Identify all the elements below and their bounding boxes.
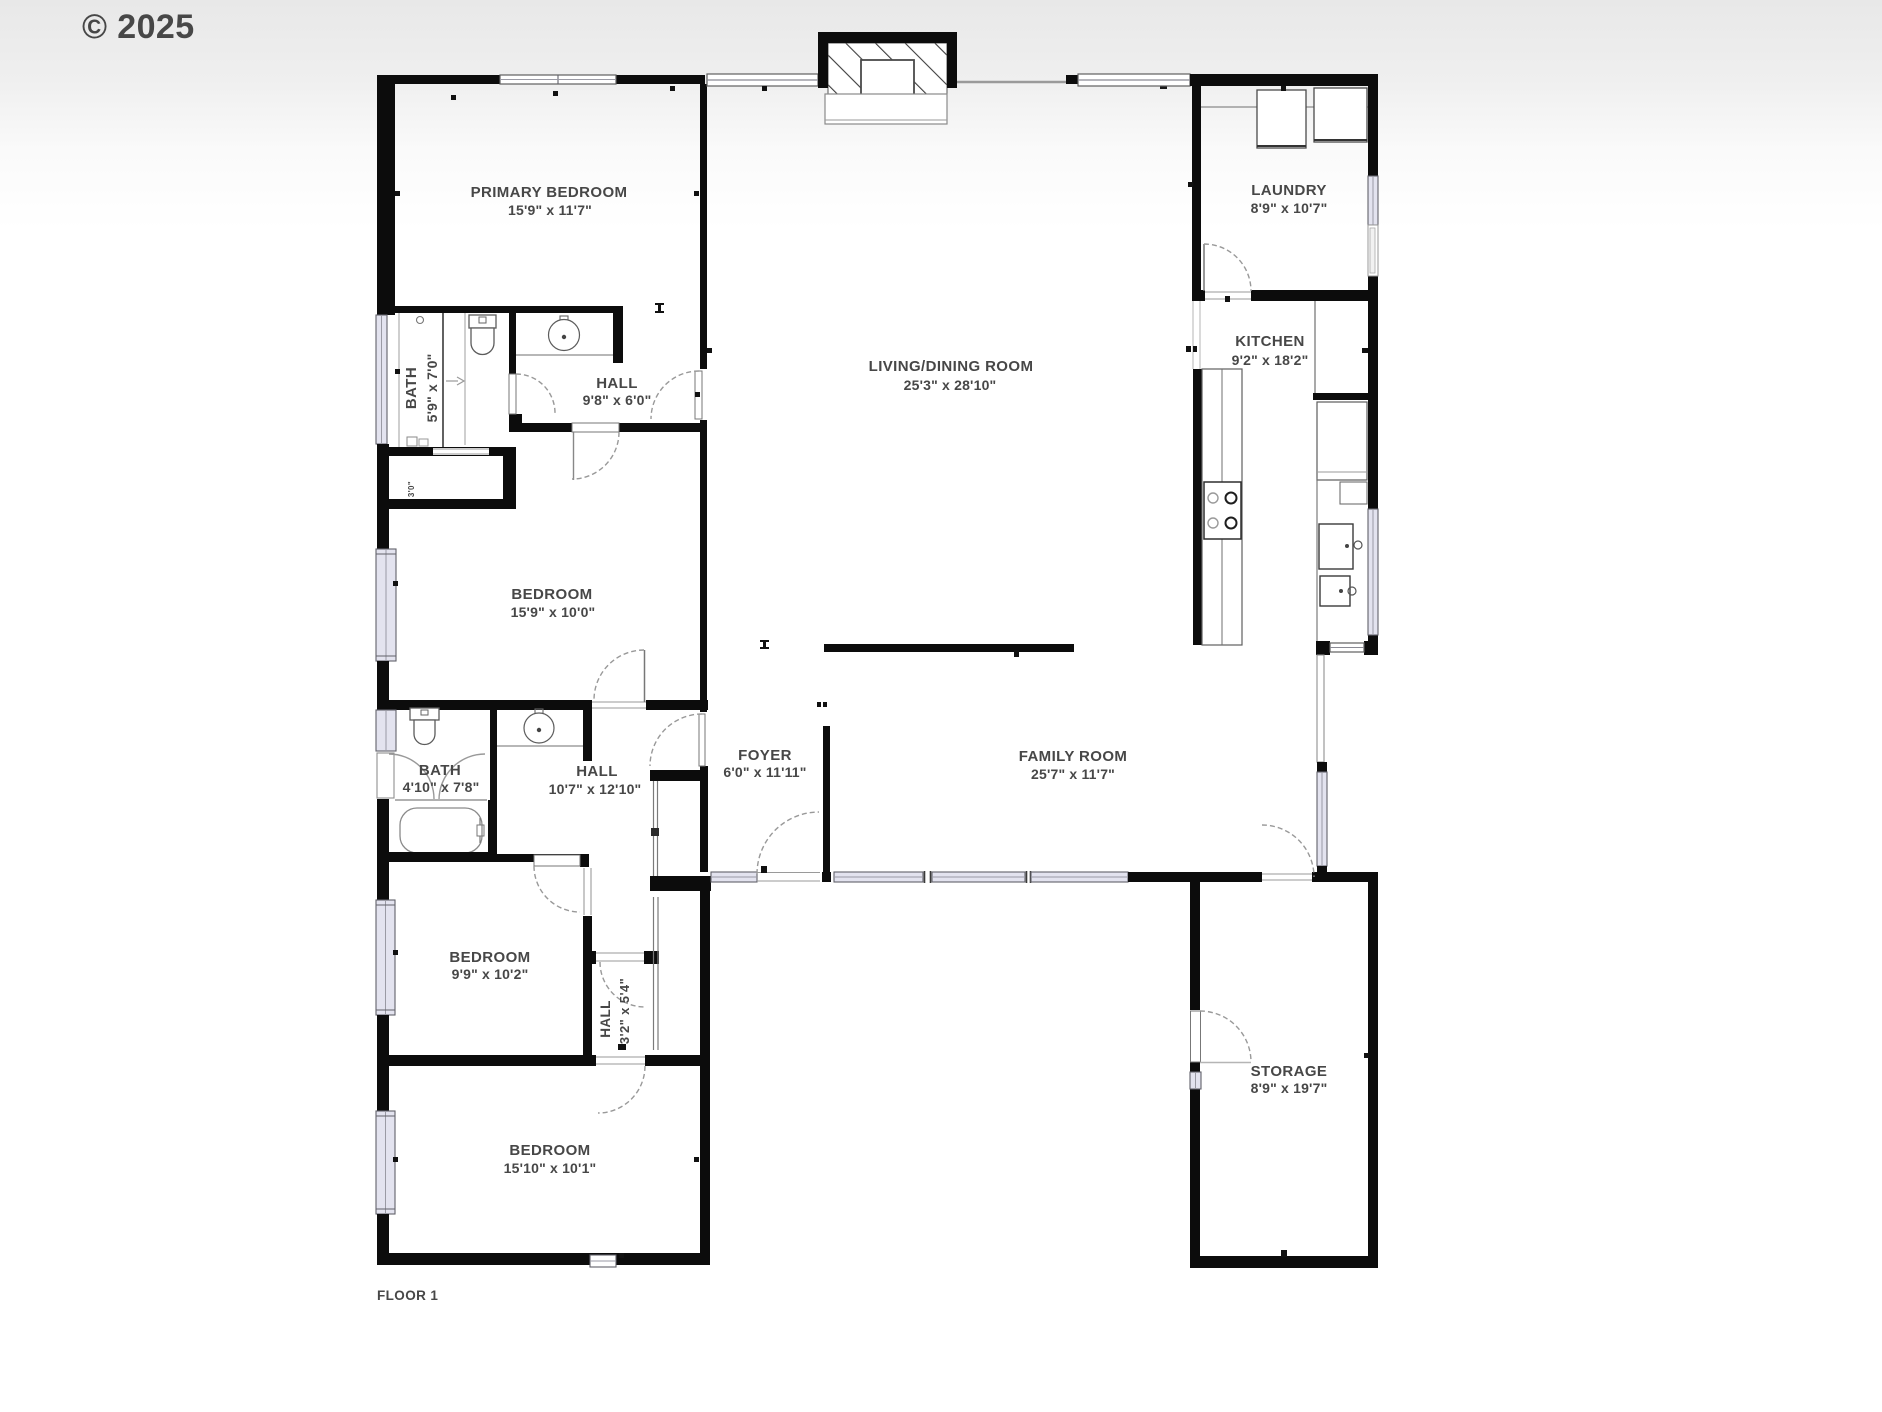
svg-text:10'7" x 12'10": 10'7" x 12'10" <box>549 781 642 797</box>
svg-text:9'8" x 6'0": 9'8" x 6'0" <box>583 392 652 408</box>
svg-text:HALL: HALL <box>598 1000 613 1038</box>
svg-text:© 2025: © 2025 <box>82 8 195 46</box>
svg-text:6'0" x 11'11": 6'0" x 11'11" <box>723 764 806 780</box>
svg-text:LIVING/DINING ROOM: LIVING/DINING ROOM <box>869 358 1034 375</box>
svg-text:BEDROOM: BEDROOM <box>449 949 530 966</box>
svg-text:BEDROOM: BEDROOM <box>509 1142 590 1159</box>
svg-text:5'9" x 7'0": 5'9" x 7'0" <box>424 354 440 423</box>
svg-text:9'2" x 18'2": 9'2" x 18'2" <box>1232 352 1309 368</box>
svg-text:15'9" x 10'0": 15'9" x 10'0" <box>511 604 596 620</box>
svg-text:BATH: BATH <box>419 762 461 779</box>
svg-text:15'10" x 10'1": 15'10" x 10'1" <box>504 1160 597 1176</box>
svg-text:PRIMARY BEDROOM: PRIMARY BEDROOM <box>471 184 628 201</box>
svg-text:STORAGE: STORAGE <box>1251 1063 1328 1080</box>
svg-text:HALL: HALL <box>596 375 638 392</box>
svg-text:3'0": 3'0" <box>407 481 416 497</box>
svg-text:FAMILY ROOM: FAMILY ROOM <box>1019 748 1128 765</box>
svg-text:15'9" x 11'7": 15'9" x 11'7" <box>508 202 592 218</box>
svg-text:4'10" x 7'8": 4'10" x 7'8" <box>403 779 480 795</box>
svg-text:LAUNDRY: LAUNDRY <box>1251 182 1327 199</box>
svg-text:KITCHEN: KITCHEN <box>1235 333 1304 350</box>
svg-text:FLOOR 1: FLOOR 1 <box>377 1288 438 1303</box>
svg-text:9'9" x 10'2": 9'9" x 10'2" <box>452 966 529 982</box>
svg-text:BATH: BATH <box>403 367 420 409</box>
svg-text:BEDROOM: BEDROOM <box>511 586 592 603</box>
svg-text:3'2" x 5'4": 3'2" x 5'4" <box>617 978 632 1044</box>
svg-text:8'9" x 19'7": 8'9" x 19'7" <box>1251 1080 1328 1096</box>
svg-text:25'3" x 28'10": 25'3" x 28'10" <box>904 377 997 393</box>
svg-text:8'9" x 10'7": 8'9" x 10'7" <box>1251 200 1328 216</box>
svg-text:25'7" x 11'7": 25'7" x 11'7" <box>1031 766 1115 782</box>
svg-text:FOYER: FOYER <box>738 747 792 764</box>
svg-text:HALL: HALL <box>576 763 618 780</box>
